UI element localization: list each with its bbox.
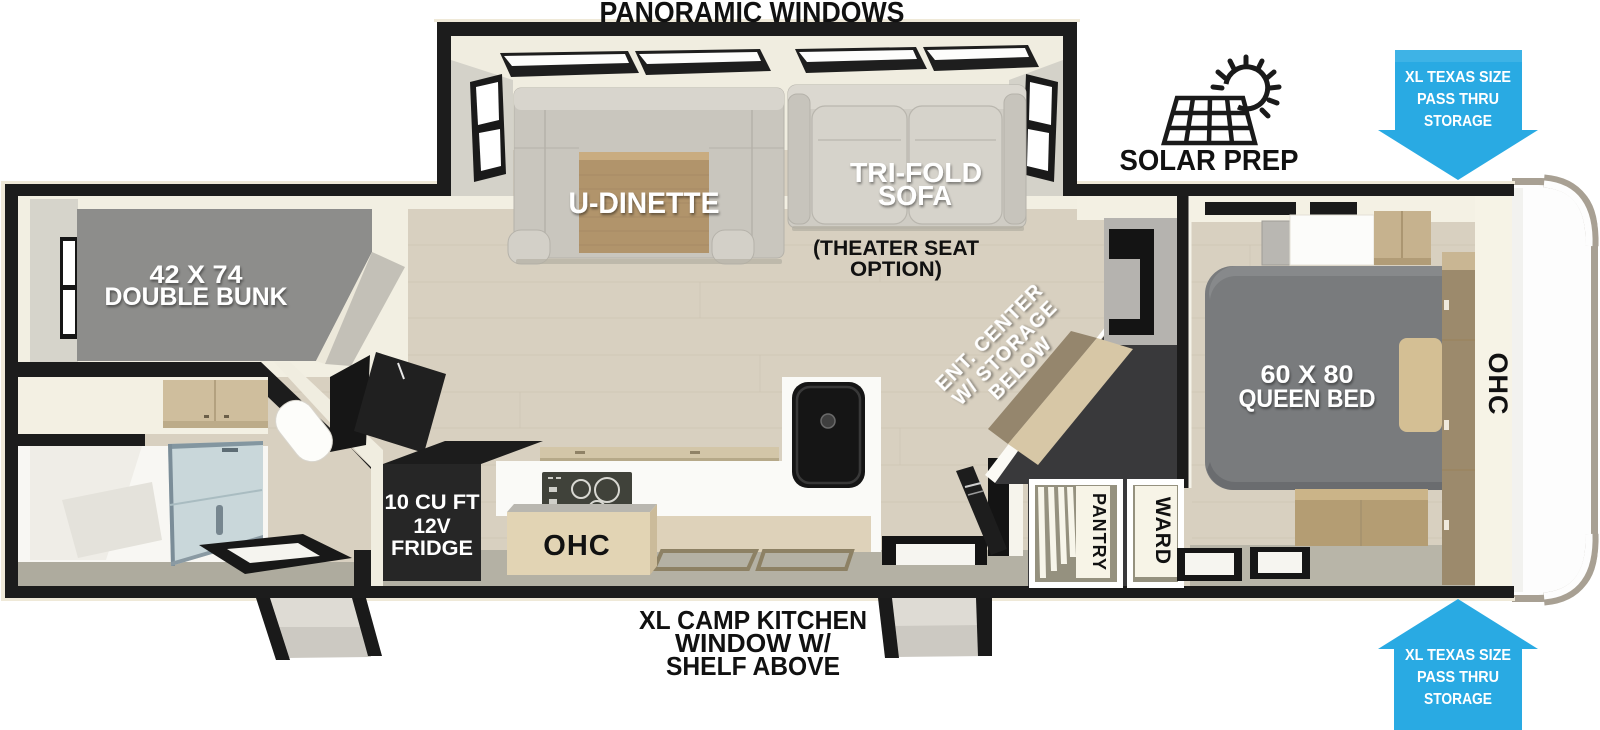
svg-text:OHC: OHC — [543, 530, 610, 562]
svg-text:PASS THRU: PASS THRU — [1417, 669, 1499, 686]
svg-text:SHELF ABOVE: SHELF ABOVE — [666, 651, 840, 681]
svg-text:OHC: OHC — [1483, 353, 1513, 416]
svg-text:(THEATER SEAT: (THEATER SEAT — [813, 237, 979, 260]
svg-text:SOFA: SOFA — [878, 180, 952, 211]
svg-text:STORAGE: STORAGE — [1424, 691, 1492, 708]
svg-text:XL TEXAS SIZE: XL TEXAS SIZE — [1405, 647, 1511, 664]
svg-text:WARD: WARD — [1151, 497, 1174, 565]
svg-text:XL TEXAS SIZE: XL TEXAS SIZE — [1405, 69, 1511, 86]
svg-text:OPTION): OPTION) — [850, 258, 942, 281]
svg-text:FRIDGE: FRIDGE — [391, 537, 473, 560]
svg-text:DOUBLE BUNK: DOUBLE BUNK — [105, 283, 288, 311]
svg-text:U-DINETTE: U-DINETTE — [569, 187, 720, 220]
svg-text:PASS THRU: PASS THRU — [1417, 91, 1499, 108]
svg-text:12V: 12V — [413, 515, 450, 538]
svg-text:SOLAR PREP: SOLAR PREP — [1120, 145, 1299, 177]
svg-text:STORAGE: STORAGE — [1424, 113, 1492, 130]
svg-text:PANTRY: PANTRY — [1089, 493, 1109, 571]
svg-text:QUEEN BED: QUEEN BED — [1239, 385, 1376, 413]
svg-text:PANORAMIC WINDOWS: PANORAMIC WINDOWS — [600, 0, 905, 29]
svg-text:10 CU FT: 10 CU FT — [385, 491, 480, 514]
